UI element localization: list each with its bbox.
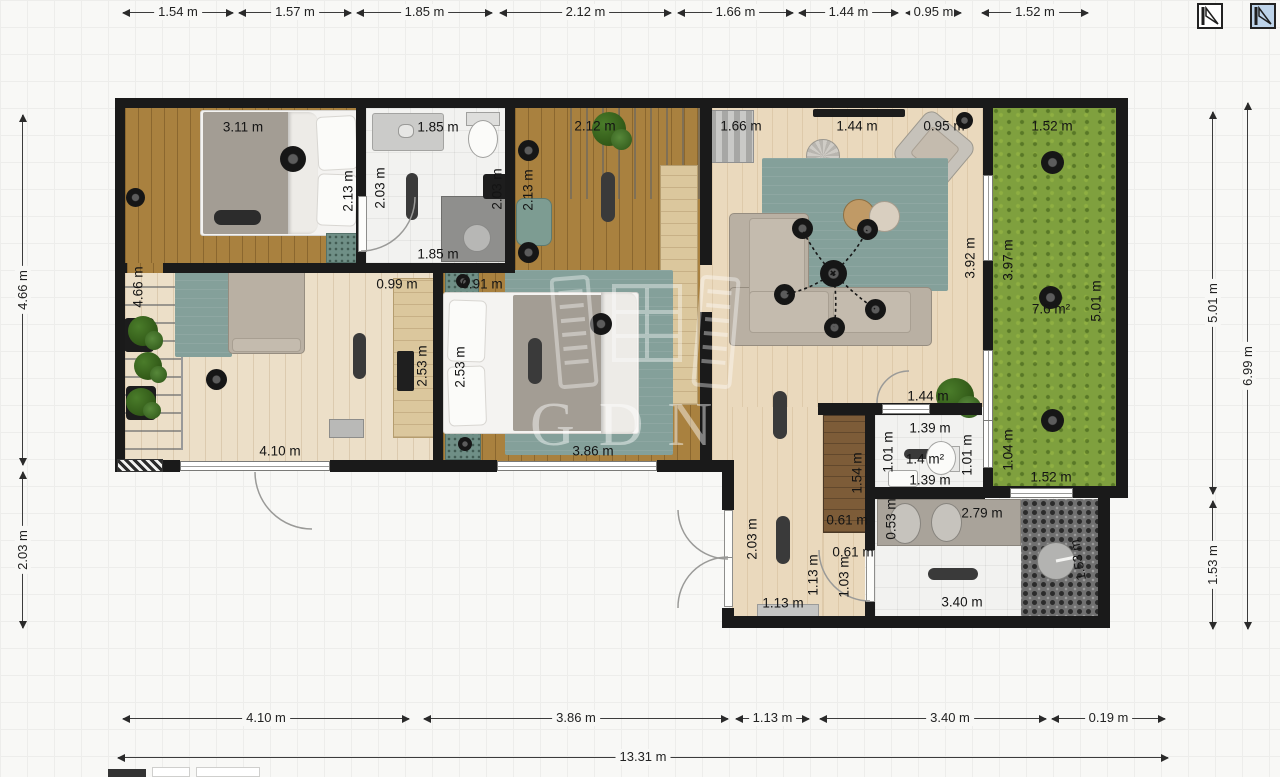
dimension-line: 0.95 m <box>906 12 961 13</box>
radiator[interactable] <box>773 391 787 439</box>
wall-bottom <box>722 616 1110 628</box>
room-measurement-label: 1.39 m <box>909 473 950 488</box>
bed1-bench[interactable] <box>214 210 261 225</box>
room-measurement-label: 2.03 m <box>745 518 760 559</box>
chaise-cushion[interactable] <box>175 271 232 357</box>
room-measurement-label: 1.01 m <box>960 434 975 475</box>
dimension-line: 2.12 m <box>500 12 671 13</box>
window[interactable] <box>882 404 930 414</box>
wall-leftroom-bed3 <box>433 263 443 472</box>
dimension-line: 3.86 m <box>424 718 728 719</box>
dimension-label: 1.13 m <box>749 710 797 726</box>
dimension-line: 4.10 m <box>123 718 409 719</box>
room-measurement-label: 1.52 m <box>1030 470 1071 485</box>
dimension-line: 1.85 m <box>357 12 492 13</box>
dimension-label: 1.54 m <box>154 4 202 20</box>
room-measurement-label: 3.86 m <box>572 444 613 459</box>
room-measurement-label: 1.44 m <box>907 389 948 404</box>
room-measurement-label: 1.44 m <box>836 119 877 134</box>
radiator[interactable] <box>353 333 366 379</box>
spider-lamp-hub-icon[interactable] <box>820 260 847 287</box>
wall-bath-bed2 <box>505 98 515 273</box>
dimension-label: 4.66 m <box>15 266 31 314</box>
dimension-label: 1.53 m <box>1205 541 1221 589</box>
wall-bath2-left-b <box>865 600 875 616</box>
room-measurement-label: 1.03 m <box>837 556 852 597</box>
dimension-label: 3.86 m <box>552 710 600 726</box>
floor-mat[interactable] <box>329 419 364 438</box>
dimension-label: 1.57 m <box>271 4 319 20</box>
dimension-line: 1.53 m <box>1212 501 1213 629</box>
room-measurement-label: 1.4 m² <box>906 452 944 467</box>
radiator[interactable] <box>928 568 978 580</box>
window[interactable] <box>983 175 993 261</box>
room-measurement-label: 1.85 m <box>417 120 458 135</box>
room-measurement-label: 0.61 m <box>826 513 867 528</box>
floorplan-canvas[interactable]: { "app": { "watermark_text": "GDN", "flo… <box>0 0 1280 777</box>
room-measurement-label: 2.53 m <box>453 346 468 387</box>
wall-bottom-left-b <box>330 460 497 472</box>
toolbar-button-stub-2[interactable] <box>152 767 190 777</box>
bedroom3-doorway-floor <box>700 265 712 312</box>
dimension-line: 6.99 m <box>1247 103 1248 629</box>
wall-light-icon[interactable] <box>518 242 539 263</box>
room-measurement-label: 0.99 m <box>376 277 417 292</box>
wall-wc-bottom <box>865 487 985 499</box>
sofa-armrest <box>232 338 301 352</box>
dimension-line: 0.19 m <box>1052 718 1165 719</box>
entry-door-leaf[interactable] <box>724 557 733 607</box>
dimension-label: 2.03 m <box>15 526 31 574</box>
cooktop[interactable] <box>397 351 414 391</box>
dimension-label: 5.01 m <box>1205 279 1221 327</box>
vanity-basin <box>398 124 414 138</box>
wall-bed-living-b <box>700 312 712 472</box>
dimension-label: 1.85 m <box>401 4 449 20</box>
dimension-line: 1.54 m <box>123 12 233 13</box>
garden-door[interactable] <box>1010 488 1073 498</box>
entry-door-leaf[interactable] <box>724 510 733 559</box>
ceiling-fan-icon[interactable] <box>590 313 612 335</box>
dimension-label: 2.12 m <box>562 4 610 20</box>
room-measurement-label: 2.13 m <box>521 169 536 210</box>
wc-window[interactable] <box>983 420 993 468</box>
room-measurement-label: 4.10 m <box>259 444 300 459</box>
room-measurement-label: 1.66 m <box>720 119 761 134</box>
window[interactable] <box>180 461 330 471</box>
sink-basin[interactable] <box>931 503 962 542</box>
dimension-line: 1.66 m <box>678 12 793 13</box>
dimension-label: 1.52 m <box>1011 4 1059 20</box>
room-measurement-label: 2.03 m <box>373 167 388 208</box>
hallway-floor-a <box>712 407 732 460</box>
room-measurement-label: 2.12 m <box>574 119 615 134</box>
room-measurement-label: 1.52 m <box>1031 119 1072 134</box>
wall-top <box>115 98 1127 108</box>
dimension-line: 3.40 m <box>820 718 1046 719</box>
dimension-label: 1.66 m <box>712 4 760 20</box>
ceiling-fan-icon[interactable] <box>280 146 306 172</box>
bedside-mat[interactable] <box>326 233 358 263</box>
room-measurement-label: 1.13 m <box>806 554 821 595</box>
dimension-label: 6.99 m <box>1240 342 1256 390</box>
room-measurement-label: 3.92 m <box>963 237 978 278</box>
room-measurement-label: 2.79 m <box>961 506 1002 521</box>
dimension-line: 4.66 m <box>22 115 23 465</box>
wall-light-icon[interactable] <box>458 437 472 451</box>
dimension-label: 0.19 m <box>1085 710 1133 726</box>
dimension-line: 1.13 m <box>736 718 809 719</box>
room-measurement-label: 2.03 m <box>490 168 505 209</box>
radiator[interactable] <box>528 338 542 384</box>
ceiling-light-icon[interactable] <box>206 369 227 390</box>
wall-hall-left-a <box>722 460 734 510</box>
spider-lamp-bulb-icon <box>792 218 813 239</box>
wall-mid-a <box>115 263 127 273</box>
toolbar-button-stub-3[interactable] <box>196 767 260 777</box>
dimension-line: 1.44 m <box>799 12 898 13</box>
wall-left <box>115 98 125 472</box>
wall-bed-living-a <box>700 98 712 265</box>
room-measurement-label: 1.01 m <box>881 431 896 472</box>
bed2-duvet[interactable] <box>601 292 637 434</box>
wall-vent <box>117 459 163 472</box>
radiator[interactable] <box>776 516 790 564</box>
room-measurement-label: 1.54 m <box>850 452 865 493</box>
dimension-label: 1.44 m <box>825 4 873 20</box>
dimension-line: 5.01 m <box>1212 112 1213 494</box>
room-measurement-label: 0.91 m <box>461 277 502 292</box>
floor-icon-1[interactable] <box>1197 3 1223 29</box>
room-measurement-label: 2.53 m <box>415 345 430 386</box>
room-measurement-label: 2.13 m <box>341 170 356 211</box>
plant-icon[interactable] <box>128 316 158 346</box>
window[interactable] <box>983 350 993 428</box>
garden-spotlight-icon[interactable] <box>1041 151 1064 174</box>
bed1-duvet[interactable] <box>288 112 318 234</box>
floor-icon-2[interactable] <box>1250 3 1276 29</box>
room-measurement-label: 3.40 m <box>941 595 982 610</box>
room-measurement-label: 0.95 m <box>923 119 964 134</box>
towel-radiator[interactable] <box>406 173 418 220</box>
wall-light-icon[interactable] <box>518 140 539 161</box>
radiator[interactable] <box>601 172 615 222</box>
wall-mid-b <box>163 263 515 273</box>
dimension-label: 13.31 m <box>616 749 671 765</box>
toolbar-button-stub-1[interactable] <box>108 769 146 777</box>
tv[interactable] <box>813 109 905 117</box>
dimension-label: 3.40 m <box>926 710 974 726</box>
plant-icon[interactable] <box>134 352 162 380</box>
room-measurement-label: 3.97 m <box>1001 239 1016 280</box>
wall-right-bottom <box>1098 494 1110 628</box>
bed2-blanket[interactable] <box>513 295 605 431</box>
room-measurement-label: 3.11 m <box>223 120 263 135</box>
dimension-line: 1.52 m <box>982 12 1088 13</box>
dimension-label: 0.95 m <box>910 4 958 20</box>
bed1-pillow[interactable] <box>316 115 359 171</box>
garden-spotlight-icon[interactable] <box>1041 409 1064 432</box>
dimension-line: 1.57 m <box>239 12 351 13</box>
room-measurement-label: 1.85 m <box>417 247 458 262</box>
spider-lamp-bulb-icon <box>774 284 795 305</box>
dimension-line: 2.03 m <box>22 472 23 628</box>
spider-lamp-bulb-icon <box>824 317 845 338</box>
bathroom1-door[interactable] <box>358 196 367 252</box>
room-measurement-label: 1.39 m <box>909 421 950 436</box>
plant-icon[interactable] <box>126 388 156 416</box>
room-measurement-label: 0.53 m <box>884 498 899 539</box>
window[interactable] <box>497 461 657 471</box>
wall-light-icon[interactable] <box>126 188 145 207</box>
dimension-line: 13.31 m <box>118 757 1168 758</box>
room-measurement-label: 4.66 m <box>131 266 146 307</box>
spider-lamp-bulb-icon <box>857 219 878 240</box>
room-measurement-label: 5.01 m <box>1089 280 1104 321</box>
wall-garden-right <box>1116 98 1128 498</box>
spider-lamp-bulb-icon <box>865 299 886 320</box>
toilet1-bowl[interactable] <box>468 120 498 158</box>
room-measurement-label: 7.6 m² <box>1032 302 1070 317</box>
shower-head-icon <box>463 224 491 252</box>
dimension-label: 4.10 m <box>242 710 290 726</box>
room-measurement-label: 1.04 m <box>1001 429 1016 470</box>
room-measurement-label: 1.13 m <box>762 596 803 611</box>
